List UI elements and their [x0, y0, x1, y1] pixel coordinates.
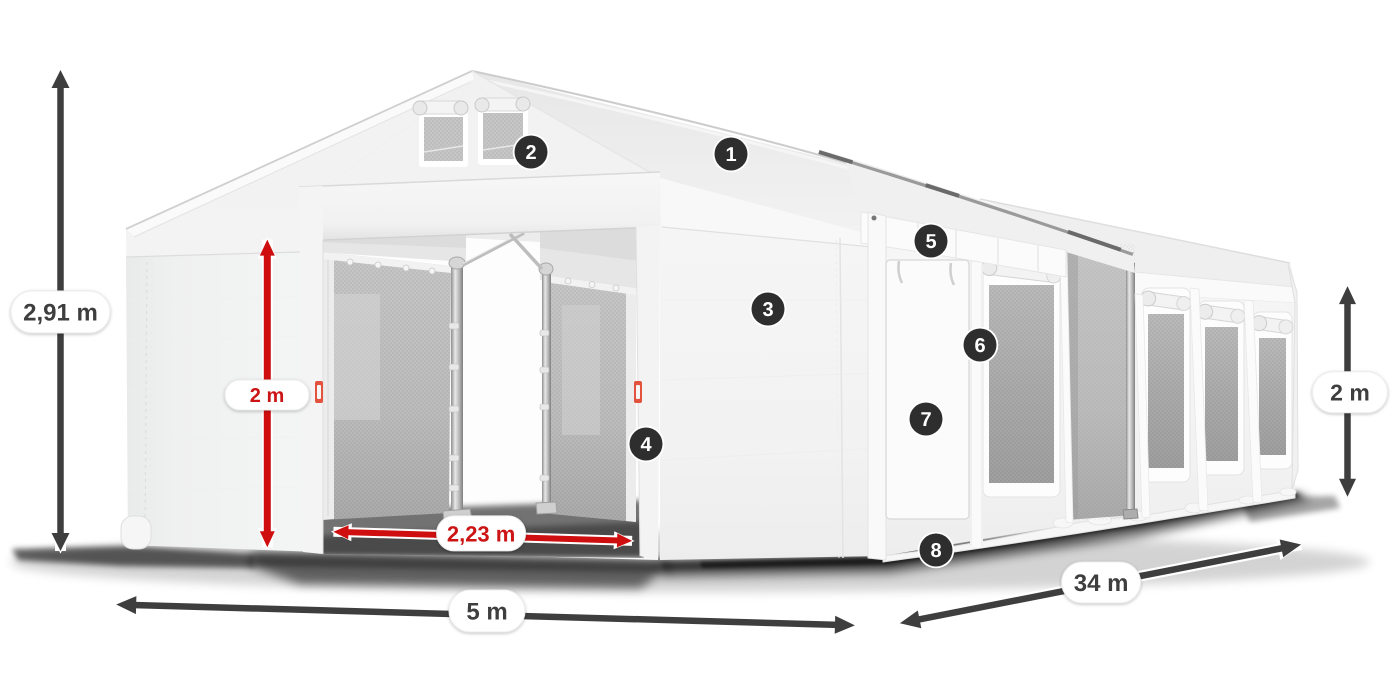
svg-text:2 m: 2 m: [250, 385, 284, 407]
svg-text:7: 7: [920, 409, 931, 431]
svg-text:1: 1: [725, 144, 736, 166]
svg-text:2,91 m: 2,91 m: [23, 300, 98, 327]
svg-text:2 m: 2 m: [1330, 380, 1370, 406]
svg-text:8: 8: [930, 540, 941, 562]
svg-text:34 m: 34 m: [1074, 570, 1129, 597]
svg-text:5 m: 5 m: [466, 599, 507, 626]
svg-text:6: 6: [974, 335, 985, 357]
svg-text:3: 3: [762, 299, 773, 321]
svg-text:4: 4: [640, 434, 652, 456]
svg-text:2: 2: [525, 142, 536, 164]
svg-text:2,23 m: 2,23 m: [447, 521, 516, 546]
svg-text:5: 5: [925, 231, 936, 253]
